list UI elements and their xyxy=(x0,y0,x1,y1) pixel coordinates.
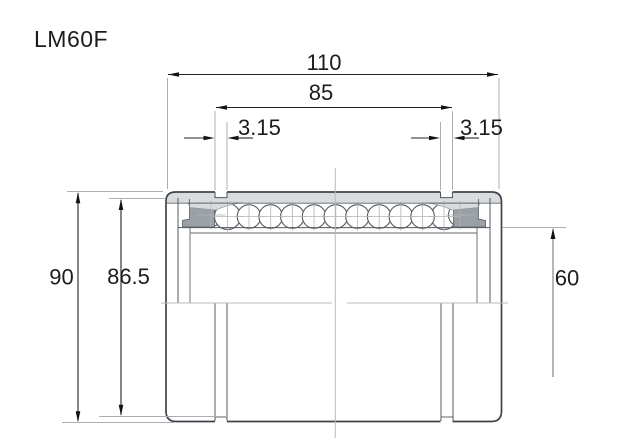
dim-overall-length: 110 xyxy=(168,50,498,77)
dim-groove-diameter: 86.5 xyxy=(107,199,150,416)
arrowhead-in-left xyxy=(429,136,440,141)
dim-bore-diameter: 60 xyxy=(551,228,580,377)
dim-label-groove-span: 85 xyxy=(309,80,333,105)
drawing-page: 110 85 3.15 3.15 90 86.5 xyxy=(0,0,640,440)
dim-label-overall-length: 110 xyxy=(306,50,341,75)
dim-label-bore-diameter: 60 xyxy=(555,266,579,291)
dim-label-outer-diameter: 90 xyxy=(49,265,73,290)
arrowhead-left xyxy=(216,105,227,110)
dim-groove-span: 85 xyxy=(216,80,452,110)
dim-label-groove-diameter: 86.5 xyxy=(107,264,150,289)
dim-groove-width-right: 3.15 xyxy=(411,115,503,140)
arrowhead-in-left xyxy=(204,136,215,141)
ring-notch-left xyxy=(216,191,226,197)
arrowhead-bottom xyxy=(76,411,81,422)
dim-label-groove-width-right: 3.15 xyxy=(460,115,503,140)
drawing-title: LM60F xyxy=(34,26,108,52)
arrowhead-right xyxy=(441,105,452,110)
arrowhead-left xyxy=(168,72,179,77)
arrowhead-right xyxy=(487,72,498,77)
arrowhead-top xyxy=(551,228,556,239)
ring-notch-right xyxy=(441,191,451,197)
arrowhead-bottom xyxy=(119,405,124,416)
arrowhead-in-right xyxy=(228,136,239,141)
dim-label-groove-width-left: 3.15 xyxy=(238,115,281,140)
dim-outer-diameter: 90 xyxy=(49,192,80,422)
technical-drawing-canvas: 110 85 3.15 3.15 90 86.5 xyxy=(0,0,640,440)
dim-groove-width-left: 3.15 xyxy=(184,115,281,140)
arrowhead-top xyxy=(76,192,81,203)
part-body xyxy=(166,191,502,422)
arrowhead-top xyxy=(119,199,124,210)
